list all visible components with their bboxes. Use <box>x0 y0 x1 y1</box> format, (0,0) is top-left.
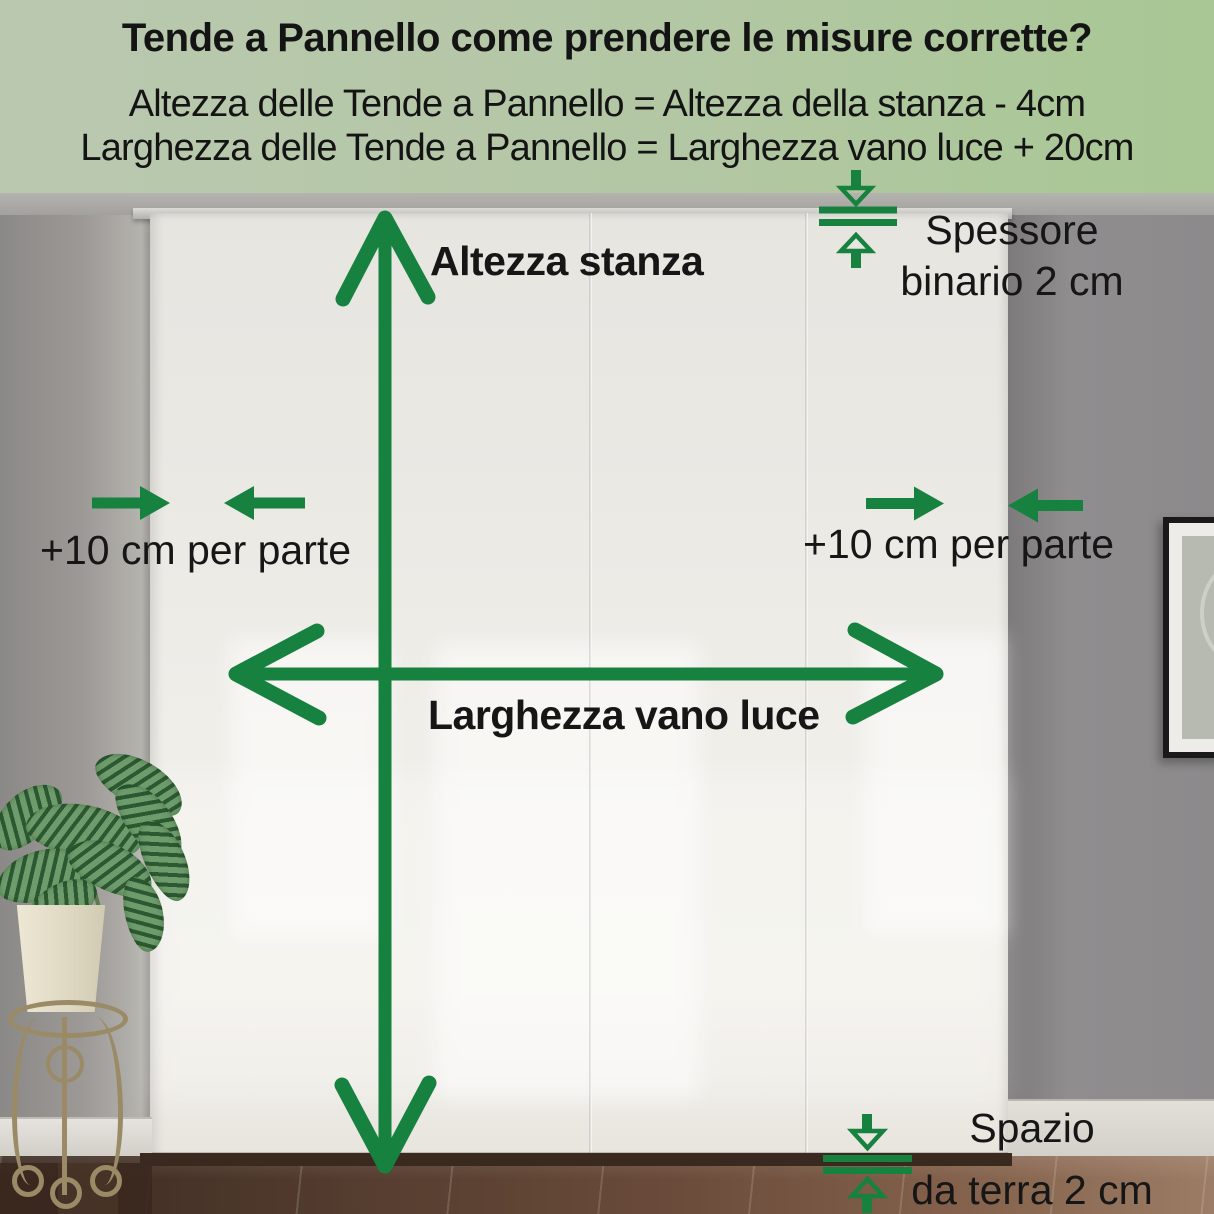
header: Tende a Pannello come prendere le misure… <box>0 0 1214 193</box>
rail-thickness-line2: binario 2 cm <box>882 256 1142 307</box>
width-formula: Larghezza delle Tende a Pannello = Largh… <box>0 127 1214 170</box>
measurement-infographic: Tende a Pannello come prendere le misure… <box>0 0 1214 1214</box>
floor-gap-line1: Spazio <box>902 1097 1162 1159</box>
plant-stand-leg <box>12 1017 63 1185</box>
rail-thickness-label: Spessore binario 2 cm <box>882 205 1142 307</box>
side-margin-label-right: +10 cm per parte <box>803 521 1114 568</box>
picture-frame <box>1163 517 1214 758</box>
plant-stand-foot <box>90 1165 122 1197</box>
panel-seam <box>805 213 808 1158</box>
plant-stand-leg <box>62 1017 67 1195</box>
panel-seam <box>589 213 592 1158</box>
plant-stand-foot <box>50 1177 82 1209</box>
curtain-floor-shadow <box>140 1153 1012 1166</box>
floor-gap-label: Spazio da terra 2 cm <box>902 1097 1162 1214</box>
light-reflection <box>150 773 1008 1103</box>
potted-plant <box>0 745 206 1214</box>
plant-stand-foot <box>12 1165 44 1197</box>
height-formula: Altezza delle Tende a Pannello = Altezza… <box>0 83 1214 126</box>
framed-artwork <box>1182 536 1214 739</box>
floor-gap-line2: da terra 2 cm <box>902 1159 1162 1214</box>
artwork-circle <box>1200 562 1214 664</box>
plant-stand-leg <box>72 1017 123 1185</box>
plant-pot <box>13 905 109 1012</box>
panel-curtains <box>150 213 1008 1158</box>
room-height-label: Altezza stanza <box>430 238 703 285</box>
rail-thickness-line1: Spessore <box>882 205 1142 256</box>
side-margin-label-left: +10 cm per parte <box>40 527 351 574</box>
page-title: Tende a Pannello come prendere le misure… <box>0 16 1214 61</box>
opening-width-label: Larghezza vano luce <box>428 692 820 739</box>
